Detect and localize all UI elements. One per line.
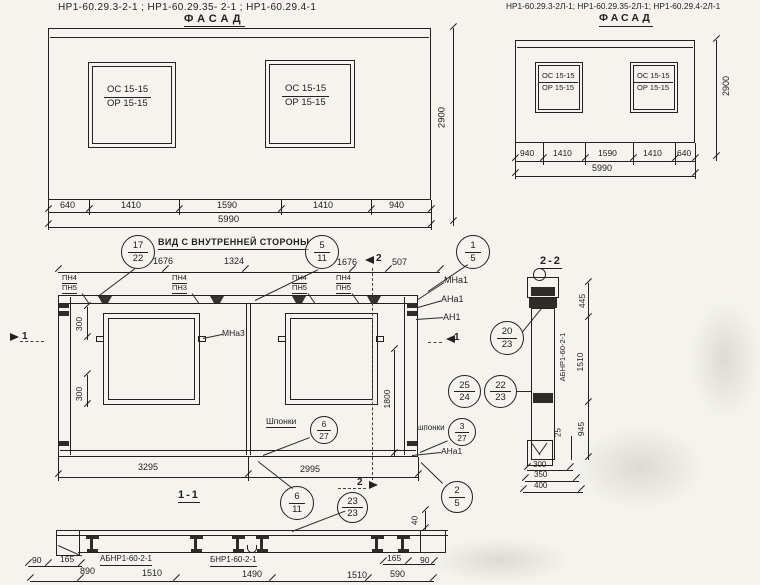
dim-label: 300 <box>533 461 546 470</box>
dim-height-label: 2900 <box>438 101 449 135</box>
dim-label: 640 <box>677 149 691 158</box>
dim-label: 1590 <box>217 201 237 211</box>
callout-bottom: 27 <box>457 433 466 443</box>
section22-part-label: АБНР1-60-2-1 <box>558 315 568 399</box>
section-2-2-label: 2-2 <box>540 255 562 269</box>
facade-left-window-1-code: ОС 15-15 ОР 15-15 <box>104 85 151 110</box>
part-label-mna1: МНа1 <box>444 276 468 286</box>
dim-line <box>28 566 82 567</box>
leader-line <box>418 300 441 308</box>
inner-window-1-inner <box>108 318 195 400</box>
callout-top: 25 <box>454 381 475 393</box>
window-code-top: ОС 15-15 <box>282 84 329 97</box>
callout-bottom: 23 <box>495 392 506 403</box>
dim-label: 640 <box>60 201 75 211</box>
callout-22-23: 2223 <box>484 375 517 408</box>
jamb-anchor <box>278 336 286 342</box>
dim-line-vertical <box>716 40 717 161</box>
callout-bottom: 5 <box>470 253 475 264</box>
dim-label: 1410 <box>553 149 572 158</box>
ext-line <box>48 200 49 230</box>
dim-line-vertical <box>394 350 395 457</box>
inner-panel-joint <box>246 304 247 455</box>
section11-part-left: АБНР1-60-2-1 <box>100 555 152 566</box>
dim-label: 507 <box>392 258 407 268</box>
facade-right-window-2-code: ОС 15-15 ОР 15-15 <box>634 72 673 92</box>
section-2-cut-line <box>372 268 373 480</box>
inner-window-2 <box>285 313 378 405</box>
callout-2-5: 25 <box>441 481 473 513</box>
dim-line <box>515 161 696 162</box>
callout-top: 6 <box>289 492 304 504</box>
facade-left-title: НР1-60.29.3-2-1 ; НР1-60.29.35- 2-1 ; НР… <box>58 2 316 13</box>
dim-line <box>58 272 440 273</box>
window-code-top: ОС 15-15 <box>539 72 578 83</box>
inner-panel-top-band <box>60 303 416 304</box>
dim-label: 165 <box>60 555 74 564</box>
leader-line <box>516 391 532 392</box>
drawing-sheet: НР1-60.29.3-2-1 ; НР1-60.29.35- 2-1 ; НР… <box>0 0 760 585</box>
section-1-1-label: 1-1 <box>178 489 200 503</box>
keys-label-left: Шпонки <box>266 417 296 428</box>
inner-panel-right-edge <box>404 297 405 455</box>
part-label-an1: АН1 <box>443 313 461 323</box>
part-label-ana1-bottom: АНа1 <box>441 447 462 456</box>
inner-view-title: ВИД С ВНУТРЕННЕЙ СТОРОНЫ <box>158 238 309 250</box>
section11-top-line <box>56 535 448 536</box>
scan-smudge <box>575 425 705 510</box>
scan-smudge <box>430 538 570 583</box>
edge-plate <box>407 303 417 308</box>
callout-1-5: 15 <box>456 235 490 269</box>
rib <box>87 549 98 552</box>
section11-part-right: БНР1-60-2-1 <box>210 556 257 567</box>
callout-25-24: 2524 <box>448 375 481 408</box>
callout-bottom: 27 <box>319 431 328 441</box>
callout-6-27: 627 <box>310 416 338 444</box>
callout-top: 23 <box>342 497 363 509</box>
dim-line <box>383 564 435 565</box>
jamb-anchor <box>376 336 384 342</box>
anchor-label: ПН5 <box>336 284 351 294</box>
section-1-cut-line <box>428 342 442 343</box>
callout-bottom: 11 <box>317 253 327 264</box>
section-1-cut-line <box>20 341 44 342</box>
rib <box>233 549 244 552</box>
inner-window-2-inner <box>290 318 373 400</box>
jamb-anchor <box>96 336 104 342</box>
callout-bottom: 5 <box>454 498 459 509</box>
dim-label: 1510 <box>142 569 162 579</box>
callout-top: 20 <box>497 327 518 339</box>
dim-label: 1324 <box>224 257 244 267</box>
dim-label: 350 <box>534 471 547 480</box>
anchor-label: ПН5 <box>292 284 307 294</box>
edge-plate <box>59 303 69 308</box>
rib <box>191 549 202 552</box>
dim-label: 1410 <box>121 201 141 211</box>
dim-label: 300 <box>75 312 85 336</box>
dim-line <box>30 581 434 582</box>
callout-23-23: 2323 <box>337 492 368 523</box>
part-label-mna3: МНа3 <box>222 329 245 338</box>
inner-window-1 <box>103 313 200 405</box>
dim-label: 25 <box>555 425 564 441</box>
callout-top: 1 <box>465 241 480 253</box>
part-label-ana1: АНа1 <box>441 295 464 305</box>
dim-label: 1510 <box>576 345 586 379</box>
dim-label: 165 <box>387 554 401 563</box>
facade-right-top-edge-line <box>517 47 693 48</box>
callout-bottom: 11 <box>292 504 302 515</box>
callout-top: 17 <box>128 241 149 253</box>
edge-plate <box>407 311 417 316</box>
section11-left-end <box>56 530 80 556</box>
dim-total-label: 5990 <box>218 215 239 225</box>
rib <box>372 549 383 552</box>
callout-17-22: 1722 <box>121 235 155 269</box>
section-2-flag-icon <box>369 481 381 489</box>
ext-line <box>431 200 432 230</box>
dim-total-label: 5990 <box>592 164 612 174</box>
section22-anchor-plate <box>529 298 557 308</box>
window-code-bottom: ОР 15-15 <box>282 97 329 109</box>
callout-5-11: 511 <box>305 235 339 269</box>
callout-bottom: 23 <box>502 339 513 350</box>
dim-label: 90 <box>32 556 41 565</box>
dim-label: 1410 <box>643 149 662 158</box>
inner-panel-bottom-band <box>60 450 416 451</box>
anchor-label: ПН5 <box>62 284 77 294</box>
facade-right-window-1-code: ОС 15-15 ОР 15-15 <box>539 72 578 92</box>
dim-label: 445 <box>578 287 588 315</box>
leader-line <box>416 317 443 320</box>
edge-plate <box>407 441 417 446</box>
callout-top: 2 <box>449 486 464 498</box>
dim-label: 1490 <box>242 570 262 580</box>
dim-tick <box>437 265 444 272</box>
callout-top: 3 <box>455 422 470 433</box>
section-1-flag-icon <box>10 333 22 341</box>
window-code-bottom: ОР 15-15 <box>104 98 151 110</box>
inner-panel-joint <box>250 304 251 455</box>
dim-label: 40 <box>411 513 420 529</box>
callout-top: 6 <box>317 420 332 431</box>
callout-top: 5 <box>314 241 329 253</box>
callout-bottom: 23 <box>347 508 358 519</box>
dim-label: 2995 <box>300 465 320 475</box>
section22-mid-plate <box>533 393 553 403</box>
callout-bottom: 24 <box>459 392 470 403</box>
dim-line-vertical <box>571 436 572 460</box>
facade-right-view-label: ФАСАД <box>599 13 653 27</box>
callout-6-11: 611 <box>280 486 314 520</box>
dim-line-vertical <box>453 28 454 226</box>
leader-line <box>421 462 443 484</box>
dim-line <box>515 176 696 177</box>
inner-panel-left-edge <box>70 297 71 455</box>
rib <box>257 549 268 552</box>
section-2-flag-icon <box>362 256 374 264</box>
window-code-top: ОС 15-15 <box>104 85 151 98</box>
dim-label: 3295 <box>138 463 158 473</box>
leader-line <box>258 461 293 489</box>
rib <box>398 549 409 552</box>
keys-label-right: шпонки <box>417 424 445 433</box>
section22-top-plate <box>531 287 555 296</box>
window-code-top: ОС 15-15 <box>634 72 673 83</box>
section22-body <box>531 308 555 460</box>
scan-smudge <box>690 300 760 420</box>
dim-label: 590 <box>390 570 405 580</box>
facade-left-view-label: ФАСАД <box>184 13 245 27</box>
section-2-cut-line <box>338 488 366 489</box>
dim-label: 1800 <box>383 384 393 414</box>
section-1-mark-right: 1 <box>454 332 460 343</box>
dim-line <box>523 492 583 493</box>
dim-label: 1410 <box>313 201 333 211</box>
facade-left-top-edge-line <box>50 37 429 38</box>
dim-label: 300 <box>75 382 85 406</box>
facade-left-window-2-code: ОС 15-15 ОР 15-15 <box>282 84 329 109</box>
edge-plate <box>59 311 69 316</box>
section-2-mark-bottom: 2 <box>357 477 363 488</box>
callout-top: 22 <box>490 381 511 393</box>
dim-label: 940 <box>389 201 404 211</box>
callout-20-23: 2023 <box>490 321 524 355</box>
dim-label: 1676 <box>153 257 173 267</box>
dim-label: 940 <box>520 149 534 158</box>
section11-top-line <box>56 530 448 531</box>
dim-label: 400 <box>534 482 547 491</box>
dim-height-label: 2900 <box>722 69 732 103</box>
anchor-label: ПН3 <box>172 284 187 294</box>
window-code-bottom: ОР 15-15 <box>539 83 577 93</box>
dim-label: 1590 <box>598 149 617 158</box>
edge-plate <box>59 441 69 446</box>
section-2-mark-top: 2 <box>376 253 382 264</box>
callout-3-27: 327 <box>448 418 476 446</box>
dim-line <box>48 227 432 228</box>
facade-right-title: НР1-60.29.3-2Л-1; НР1-60.29.35-2Л-1; НР1… <box>506 2 720 11</box>
dim-line <box>58 477 419 478</box>
dim-line <box>48 212 432 213</box>
callout-bottom: 22 <box>133 253 144 264</box>
window-code-bottom: ОР 15-15 <box>634 83 672 93</box>
